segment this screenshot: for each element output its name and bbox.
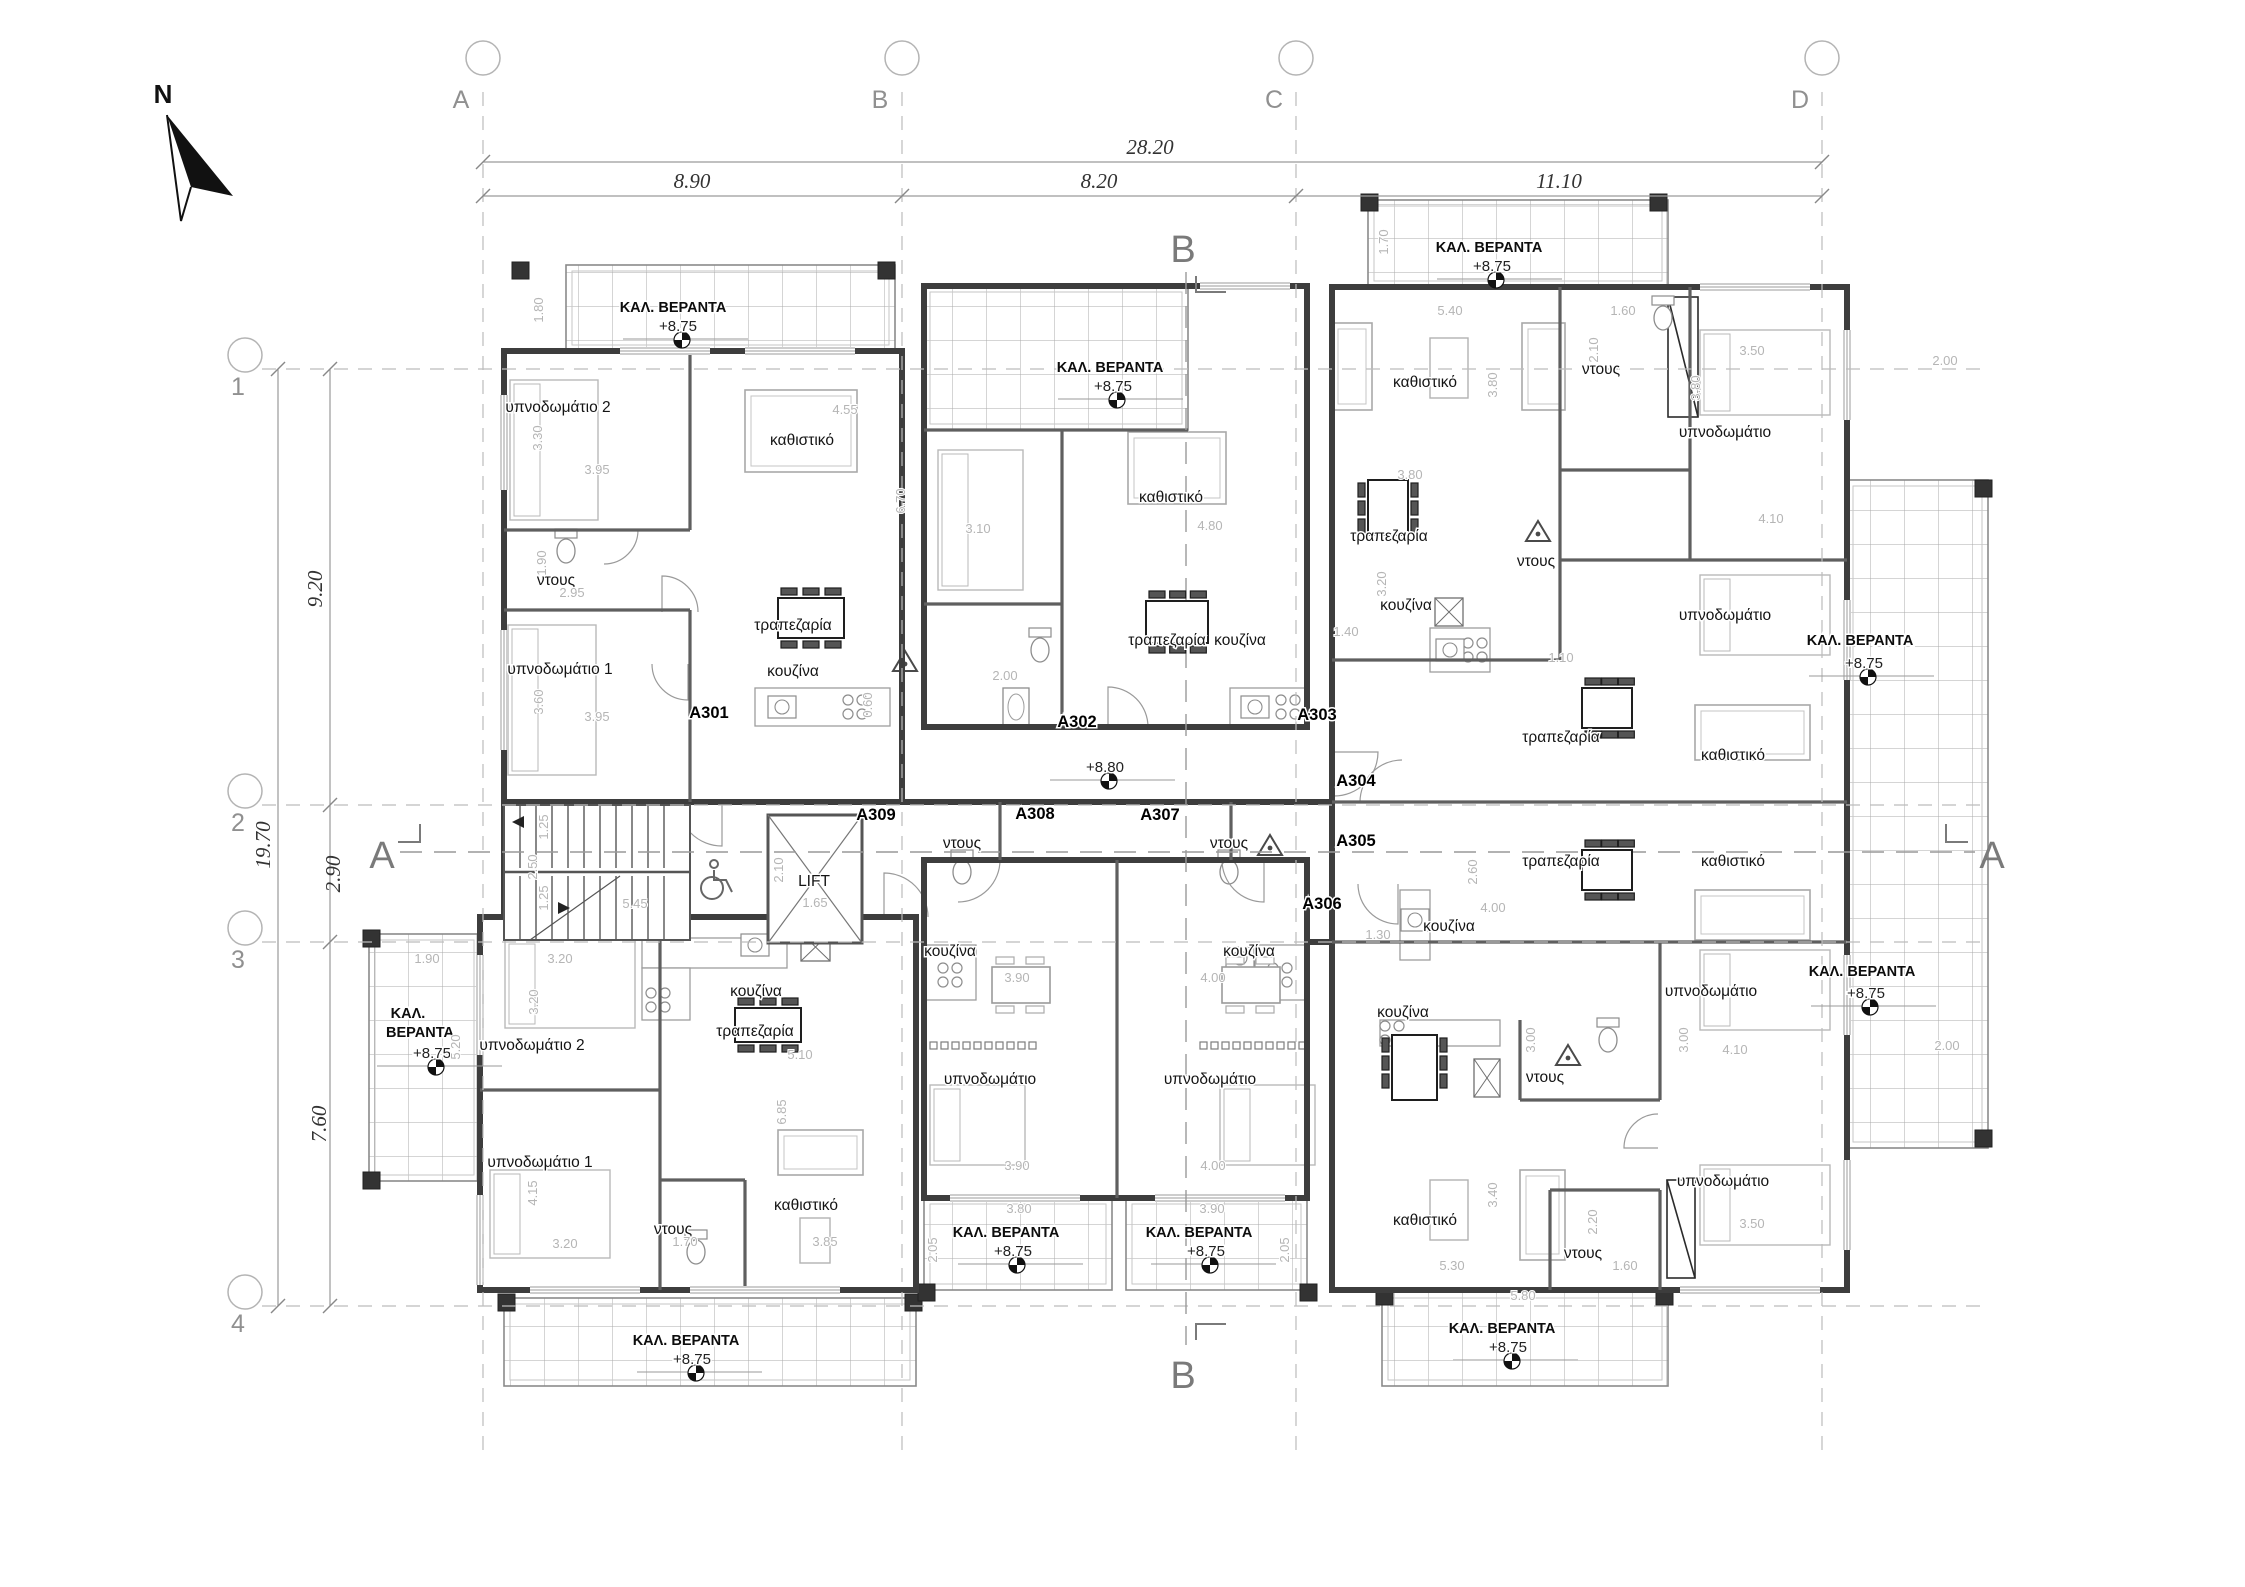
dimension-value: 2.95 bbox=[559, 585, 584, 600]
door-arc bbox=[1624, 1114, 1658, 1148]
closet-dot bbox=[1277, 1042, 1284, 1049]
chair bbox=[1585, 840, 1601, 847]
bed bbox=[1220, 1085, 1315, 1165]
level-marker-q2 bbox=[1101, 781, 1109, 789]
hob-burner bbox=[1290, 695, 1300, 705]
dimension-value: 4.80 bbox=[1197, 518, 1222, 533]
dimension-value: 3.80 bbox=[1688, 375, 1703, 400]
dimension-value: 1.70 bbox=[672, 1234, 697, 1249]
veranda-post bbox=[1975, 480, 1992, 497]
dimension-value: 5.45 bbox=[622, 896, 647, 911]
dimension-value: 3.80 bbox=[1397, 467, 1422, 482]
dimension-value: 5.20 bbox=[448, 1034, 463, 1059]
room-label: ντους bbox=[1517, 553, 1555, 570]
veranda-label: ΚΑΛ. ΒΕΡΑΝΤΑ bbox=[1807, 633, 1914, 649]
veranda-label: ΚΑΛ. ΒΕΡΑΝΤΑ bbox=[620, 300, 727, 316]
room-label: κουζίνα bbox=[1423, 918, 1475, 935]
chair bbox=[803, 588, 819, 595]
bed bbox=[490, 1170, 610, 1258]
section-bracket bbox=[398, 824, 420, 842]
dimension-value: 1.25 bbox=[536, 885, 551, 910]
room-label: τραπεζαρία bbox=[1522, 729, 1600, 746]
chair bbox=[1358, 483, 1365, 497]
bed bbox=[1700, 330, 1830, 415]
dimension-value: 3.00 bbox=[1523, 1027, 1538, 1052]
apartment-code: A307 bbox=[1140, 806, 1179, 824]
closet-dot bbox=[1244, 1042, 1251, 1049]
floor-plan-drawing: ABCD123428.208.908.2011.1019.709.202.907… bbox=[0, 0, 2245, 1587]
dimension-value: 3.40 bbox=[1485, 1182, 1500, 1207]
room-label: τραπεζαρία bbox=[716, 1023, 794, 1040]
door-arc bbox=[1108, 687, 1148, 727]
chair bbox=[738, 1045, 754, 1052]
hob-burner bbox=[938, 963, 948, 973]
dimension-value: 0.60 bbox=[860, 692, 875, 717]
closet-dot bbox=[996, 1042, 1003, 1049]
grid-row-bubble bbox=[228, 911, 262, 945]
dim-total-width: 28.20 bbox=[1126, 135, 1174, 159]
dimension-value: 2.50 bbox=[525, 854, 540, 879]
room-label: υπνοδωμάτιο bbox=[1164, 1071, 1256, 1088]
dimension-value: 5.80 bbox=[1510, 1288, 1535, 1303]
toilet-bowl bbox=[557, 539, 575, 563]
chair bbox=[1618, 840, 1634, 847]
apartment-code: A308 bbox=[1015, 805, 1054, 823]
dim-span: 8.20 bbox=[1081, 169, 1118, 193]
grid-row-bubble bbox=[228, 1275, 262, 1309]
toilet-tank bbox=[1029, 628, 1051, 637]
veranda-post bbox=[1300, 1284, 1317, 1301]
dining-table bbox=[1582, 688, 1632, 728]
dimension-value: 2.10 bbox=[1586, 337, 1601, 362]
room-label: υπνοδωμάτιο 2 bbox=[505, 399, 610, 416]
veranda-label: ΚΑΛ. ΒΕΡΑΝΤΑ bbox=[1809, 964, 1916, 980]
closet-dot bbox=[930, 1042, 937, 1049]
dim-span: 8.90 bbox=[674, 169, 711, 193]
dimension-value: 3.00 bbox=[1676, 1027, 1691, 1052]
grid-column-label: C bbox=[1265, 86, 1283, 114]
apartment-code: A305 bbox=[1336, 832, 1375, 850]
dining-table bbox=[1392, 1035, 1437, 1100]
chair bbox=[1602, 840, 1618, 847]
room-label: υπνοδωμάτιο bbox=[944, 1071, 1036, 1088]
hob-burner bbox=[952, 963, 962, 973]
apartment-code: A309 bbox=[856, 806, 895, 824]
table bbox=[1222, 967, 1280, 1003]
level-label: +8.75 bbox=[673, 1351, 711, 1368]
dimension-value: 1.10 bbox=[1548, 650, 1573, 665]
dining-table bbox=[1368, 480, 1408, 535]
door-arc bbox=[1358, 884, 1398, 924]
dim-total-height: 19.70 bbox=[251, 821, 275, 869]
bed bbox=[930, 1085, 1025, 1165]
apartment-code: A306 bbox=[1302, 895, 1341, 913]
room-label: κουζίνα bbox=[1380, 597, 1432, 614]
dimension-value: 4.10 bbox=[1758, 511, 1783, 526]
veranda-post bbox=[363, 1172, 380, 1189]
closet-dot bbox=[1018, 1042, 1025, 1049]
dimension-value: 3.10 bbox=[965, 521, 990, 536]
dimension-value: 2.20 bbox=[1585, 1209, 1600, 1234]
dimension-value: 1.65 bbox=[802, 895, 827, 910]
dimension-value: 1.25 bbox=[536, 814, 551, 839]
chair bbox=[1618, 731, 1634, 738]
room-label: κουζίνα bbox=[1214, 632, 1266, 649]
level-label: +8.75 bbox=[1845, 655, 1883, 672]
room-label: κουζίνα bbox=[767, 663, 819, 680]
drain-triangle bbox=[1556, 1045, 1580, 1065]
room-label: υπνοδωμάτιο 1 bbox=[507, 661, 612, 678]
section-marker-bottom: B bbox=[1170, 1355, 1195, 1397]
apartment-code: A304 bbox=[1336, 772, 1376, 790]
closet-dot bbox=[1007, 1042, 1014, 1049]
hob-burner bbox=[1276, 695, 1286, 705]
dim-span: 9.20 bbox=[303, 570, 327, 607]
closet-dot bbox=[1233, 1042, 1240, 1049]
sofa bbox=[1695, 890, 1810, 940]
room-label: υπνοδωμάτιο 2 bbox=[479, 1037, 584, 1054]
grid-row-label: 2 bbox=[231, 809, 245, 837]
chair bbox=[781, 641, 797, 648]
hob-burner bbox=[938, 977, 948, 987]
hob-burner bbox=[952, 977, 962, 987]
level-label: +8.75 bbox=[1489, 1339, 1527, 1356]
chair bbox=[1382, 1074, 1389, 1088]
drain-dot bbox=[1536, 532, 1541, 537]
veranda-label: ΚΑΛ. ΒΕΡΑΝΤΑ bbox=[1057, 360, 1164, 376]
chair bbox=[1026, 1006, 1044, 1013]
closet-dot bbox=[1200, 1042, 1207, 1049]
sofa bbox=[778, 1130, 863, 1175]
hob-burner bbox=[1394, 1021, 1404, 1031]
hob-burner bbox=[1477, 638, 1487, 648]
grid-column-label: D bbox=[1791, 86, 1809, 114]
grid-column-bubble bbox=[1805, 41, 1839, 75]
bed bbox=[938, 450, 1023, 590]
dimension-value: 1.90 bbox=[534, 550, 549, 575]
chair bbox=[1411, 483, 1418, 497]
chair bbox=[1440, 1038, 1447, 1052]
level-label: +8.75 bbox=[1094, 378, 1132, 395]
dimension-value: 3.80 bbox=[1485, 372, 1500, 397]
level-label: +8.75 bbox=[1473, 258, 1511, 275]
room-label: καθιστικό bbox=[1701, 747, 1765, 764]
level-label: +8.75 bbox=[659, 318, 697, 335]
dimension-value: 4.00 bbox=[1480, 900, 1505, 915]
room-label: ντους bbox=[1526, 1069, 1564, 1086]
chair bbox=[1602, 731, 1618, 738]
dimension-value: 1.30 bbox=[1365, 927, 1390, 942]
hob-burner bbox=[1276, 709, 1286, 719]
veranda-post bbox=[498, 1294, 515, 1311]
chair bbox=[1190, 591, 1206, 598]
chair bbox=[1411, 501, 1418, 515]
hob-burner bbox=[646, 1002, 656, 1012]
dim-span: 2.90 bbox=[321, 855, 345, 892]
grid-column-bubble bbox=[1279, 41, 1313, 75]
chair bbox=[781, 588, 797, 595]
dimension-value: 1.90 bbox=[414, 951, 439, 966]
chair bbox=[996, 957, 1014, 964]
dimension-value: 2.00 bbox=[1932, 353, 1957, 368]
closet-dot bbox=[1255, 1042, 1262, 1049]
chair bbox=[1170, 591, 1186, 598]
hob-burner bbox=[1282, 963, 1292, 973]
grid-row-bubble bbox=[228, 338, 262, 372]
veranda-label: ΚΑΛ. bbox=[391, 1006, 426, 1022]
hob-burner bbox=[1282, 977, 1292, 987]
door-arc bbox=[662, 576, 698, 612]
dimension-value: 4.15 bbox=[525, 1180, 540, 1205]
drain-triangle bbox=[1526, 521, 1550, 541]
closet-dot bbox=[941, 1042, 948, 1049]
dimension-value: 4.00 bbox=[1200, 1158, 1225, 1173]
dimension-value: 3.50 bbox=[1739, 1216, 1764, 1231]
toilet-bowl bbox=[1599, 1028, 1617, 1052]
chair bbox=[1585, 893, 1601, 900]
dimension-value: 2.60 bbox=[1465, 859, 1480, 884]
chair bbox=[1440, 1074, 1447, 1088]
chair bbox=[1382, 1056, 1389, 1070]
dimension-value: 3.20 bbox=[547, 951, 572, 966]
chair bbox=[1602, 678, 1618, 685]
room-label: υπνοδωμάτιο bbox=[1679, 607, 1771, 624]
dimension-value: 4.00 bbox=[1200, 970, 1225, 985]
room-label: καθιστικό bbox=[1393, 1212, 1457, 1229]
drain-dot bbox=[1566, 1056, 1571, 1061]
room-label: καθιστικό bbox=[1393, 374, 1457, 391]
section-marker-top: B bbox=[1170, 229, 1195, 271]
room-label: υπνοδωμάτιο bbox=[1679, 424, 1771, 441]
coffee-table bbox=[1430, 1180, 1468, 1240]
dimension-value: 4.10 bbox=[1722, 1042, 1747, 1057]
grid-column-label: A bbox=[453, 86, 470, 114]
dimension-value: 3.90 bbox=[1004, 970, 1029, 985]
chair bbox=[1618, 678, 1634, 685]
dimension-value: 2.05 bbox=[1277, 1237, 1292, 1262]
chair bbox=[825, 641, 841, 648]
dimension-value: 3.20 bbox=[1374, 571, 1389, 596]
grid-row-label: 3 bbox=[231, 946, 245, 974]
closet-dot bbox=[1266, 1042, 1273, 1049]
room-label: τραπεζαρία bbox=[1522, 853, 1600, 870]
room-label: κουζίνα bbox=[924, 943, 976, 960]
closet-dot bbox=[1222, 1042, 1229, 1049]
room-label: υπνοδωμάτιο bbox=[1677, 1173, 1769, 1190]
dimension-value: 2.05 bbox=[925, 1237, 940, 1262]
chair bbox=[760, 1045, 776, 1052]
veranda-post bbox=[878, 262, 895, 279]
dimension-value: 5.10 bbox=[787, 1047, 812, 1062]
veranda-hatch bbox=[1847, 480, 1988, 1148]
room-label: τραπεζαρία bbox=[1350, 528, 1428, 545]
apartment-code: A303 bbox=[1297, 706, 1336, 724]
grid-column-bubble bbox=[466, 41, 500, 75]
chair bbox=[1618, 893, 1634, 900]
closet-dot bbox=[985, 1042, 992, 1049]
chair bbox=[825, 588, 841, 595]
level-label: +8.75 bbox=[994, 1243, 1032, 1260]
veranda-post bbox=[1975, 1130, 1992, 1147]
dimension-value: 5.40 bbox=[1437, 303, 1462, 318]
room-label: καθιστικό bbox=[774, 1197, 838, 1214]
bed bbox=[508, 625, 596, 775]
veranda-label: ΚΑΛ. ΒΕΡΑΝΤΑ bbox=[1436, 240, 1543, 256]
door-arc bbox=[652, 664, 688, 700]
grid-column-bubble bbox=[885, 41, 919, 75]
apartment-code: A302 bbox=[1057, 713, 1096, 731]
dimension-value: 3.80 bbox=[1006, 1201, 1031, 1216]
veranda-label: ΚΑΛ. ΒΕΡΑΝΤΑ bbox=[633, 1333, 740, 1349]
level-label: +8.75 bbox=[1187, 1243, 1225, 1260]
chair bbox=[1026, 957, 1044, 964]
toilet-tank bbox=[1597, 1018, 1619, 1027]
dimension-value: 3.50 bbox=[1739, 343, 1764, 358]
wheelchair-icon-head bbox=[710, 860, 718, 868]
door-arc bbox=[604, 530, 638, 564]
veranda-label: ΚΑΛ. ΒΕΡΑΝΤΑ bbox=[953, 1225, 1060, 1241]
chair bbox=[996, 1006, 1014, 1013]
hob-burner bbox=[843, 695, 853, 705]
level-label: +8.75 bbox=[413, 1045, 451, 1062]
closet-dot bbox=[1029, 1042, 1036, 1049]
veranda-hatch bbox=[566, 265, 895, 351]
chair bbox=[782, 998, 798, 1005]
chair bbox=[1149, 591, 1165, 598]
dimension-value: 1.80 bbox=[531, 297, 546, 322]
room-label: τραπεζαρία bbox=[754, 617, 832, 634]
hob-burner bbox=[843, 709, 853, 719]
dimension-value: 1.40 bbox=[1333, 624, 1358, 639]
dimension-value: 1.60 bbox=[1612, 1258, 1637, 1273]
chair bbox=[1585, 678, 1601, 685]
dimension-value: 1.70 bbox=[1376, 229, 1391, 254]
dim-span: 7.60 bbox=[307, 1105, 331, 1142]
dimension-value: 5.30 bbox=[1439, 1258, 1464, 1273]
dimension-value: 3.95 bbox=[584, 462, 609, 477]
dimension-value: 3.90 bbox=[1004, 1158, 1029, 1173]
closet-dot bbox=[952, 1042, 959, 1049]
veranda-post bbox=[512, 262, 529, 279]
sofa bbox=[1520, 1170, 1565, 1260]
room-label: ντους bbox=[943, 835, 981, 852]
closet-dot bbox=[974, 1042, 981, 1049]
toilet-bowl bbox=[1031, 638, 1049, 662]
floor-plan-page: ABCD123428.208.908.2011.1019.709.202.907… bbox=[0, 0, 2245, 1587]
grid-row-label: 4 bbox=[231, 1310, 245, 1338]
room-label: τραπεζαρία bbox=[1128, 632, 1206, 649]
room-label: κουζίνα bbox=[1223, 943, 1275, 960]
dimension-value: 1.60 bbox=[1610, 303, 1635, 318]
room-label: καθιστικό bbox=[1139, 489, 1203, 506]
dimension-value: 2.00 bbox=[1934, 1038, 1959, 1053]
level-label: +8.75 bbox=[1847, 985, 1885, 1002]
dimension-value: 3.20 bbox=[526, 989, 541, 1014]
drain-dot bbox=[1268, 846, 1273, 851]
kitchen-sink bbox=[1436, 639, 1464, 661]
veranda-post bbox=[918, 1284, 935, 1301]
chair bbox=[1440, 1056, 1447, 1070]
chair bbox=[1256, 1006, 1274, 1013]
level-label: +8.80 bbox=[1086, 759, 1124, 776]
section-marker-right: A bbox=[1979, 835, 2005, 877]
room-label: κουζίνα bbox=[730, 983, 782, 1000]
veranda-post bbox=[363, 930, 380, 947]
veranda-label: ΚΑΛ. ΒΕΡΑΝΤΑ bbox=[1146, 1225, 1253, 1241]
veranda-label: ΚΑΛ. ΒΕΡΑΝΤΑ bbox=[1449, 1321, 1556, 1337]
chair bbox=[1602, 893, 1618, 900]
dimension-value: 3.20 bbox=[552, 1236, 577, 1251]
dimension-value: 3.95 bbox=[584, 709, 609, 724]
kitchen-sink bbox=[1241, 696, 1269, 718]
north-arrow-label: N bbox=[154, 79, 173, 109]
apartment-code: A301 bbox=[689, 704, 728, 722]
kitchen-sink bbox=[741, 934, 769, 956]
kitchen-sink bbox=[768, 696, 796, 718]
room-label: LIFT bbox=[798, 873, 830, 890]
dimension-value: 6.70 bbox=[893, 488, 908, 513]
hob-burner bbox=[646, 988, 656, 998]
dimension-value: 6.85 bbox=[774, 1099, 789, 1124]
chair bbox=[1226, 1006, 1244, 1013]
room-label: υπνοδωμάτιο 1 bbox=[487, 1154, 592, 1171]
dimension-value: 3.90 bbox=[1199, 1201, 1224, 1216]
dimension-value: 3.85 bbox=[812, 1234, 837, 1249]
section-marker-left: A bbox=[369, 835, 395, 877]
dimension-value: 2.10 bbox=[771, 857, 786, 882]
toilet-bowl bbox=[1654, 306, 1672, 330]
dim-span: 11.10 bbox=[1536, 169, 1582, 193]
room-label: κουζίνα bbox=[1377, 1004, 1429, 1021]
closet-dot bbox=[1288, 1042, 1295, 1049]
veranda-label: ΒΕΡΑΝΤΑ bbox=[386, 1025, 454, 1041]
room-label: καθιστικό bbox=[1701, 853, 1765, 870]
chair bbox=[1382, 1038, 1389, 1052]
hob-burner bbox=[1380, 1021, 1390, 1031]
room-label: ντους bbox=[1564, 1245, 1602, 1262]
closet-dot bbox=[1211, 1042, 1218, 1049]
room-label: καθιστικό bbox=[770, 432, 834, 449]
veranda-hatch bbox=[924, 286, 1188, 430]
grid-row-bubble bbox=[228, 774, 262, 808]
room-label: υπνοδωμάτιο bbox=[1665, 983, 1757, 1000]
dimension-value: 2.00 bbox=[992, 668, 1017, 683]
dimension-value: 4.55 bbox=[832, 402, 857, 417]
dimension-value: 3.30 bbox=[530, 425, 545, 450]
room-label: ντους bbox=[1210, 835, 1248, 852]
grid-column-label: B bbox=[872, 86, 889, 114]
chair bbox=[803, 641, 819, 648]
toilet-tank bbox=[1652, 296, 1674, 305]
section-bracket bbox=[1196, 1324, 1226, 1340]
chair bbox=[1358, 501, 1365, 515]
toilet-bowl bbox=[953, 860, 971, 884]
closet-dot bbox=[963, 1042, 970, 1049]
dimension-value: 3.60 bbox=[531, 689, 546, 714]
grid-row-label: 1 bbox=[231, 373, 245, 401]
